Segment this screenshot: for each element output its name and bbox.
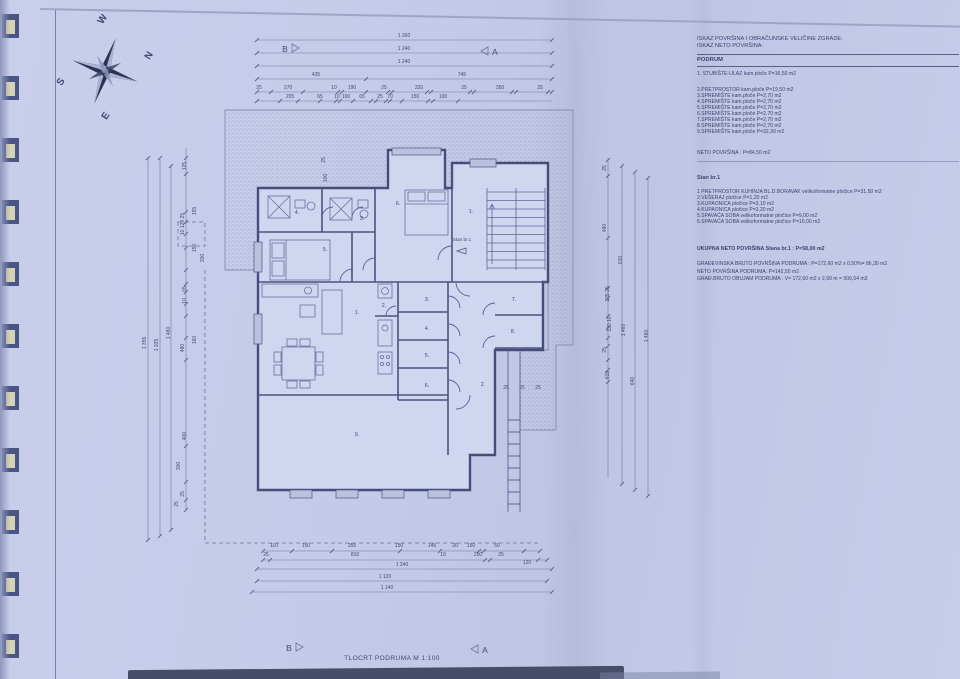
section-marker-b-bottom: B bbox=[286, 643, 292, 653]
svg-text:20: 20 bbox=[452, 543, 458, 549]
svg-text:300: 300 bbox=[176, 462, 182, 471]
svg-text:125: 125 bbox=[182, 162, 188, 171]
table-line: GRAĐ.BRUTO OBUJAM PODRUMA : V= 172,60 m2… bbox=[697, 277, 959, 283]
svg-text:255: 255 bbox=[348, 543, 357, 549]
svg-text:480: 480 bbox=[602, 224, 608, 233]
svg-text:1 480: 1 480 bbox=[166, 327, 172, 340]
svg-text:5.: 5. bbox=[425, 353, 430, 359]
section-marker-b-bottom-arrow bbox=[296, 643, 303, 651]
svg-text:25: 25 bbox=[503, 385, 509, 391]
svg-text:65: 65 bbox=[182, 286, 188, 292]
svg-text:25: 25 bbox=[321, 157, 327, 163]
svg-text:10 120 25: 10 120 25 bbox=[180, 213, 186, 235]
svg-text:150: 150 bbox=[411, 94, 420, 100]
svg-text:25: 25 bbox=[602, 347, 608, 353]
svg-text:1 240: 1 240 bbox=[398, 59, 411, 65]
svg-text:25: 25 bbox=[180, 491, 186, 497]
svg-text:615: 615 bbox=[605, 371, 611, 380]
svg-text:640: 640 bbox=[630, 377, 636, 386]
section-marker-a-top: A bbox=[492, 47, 498, 57]
table-line: GRAĐEVINSKA BRUTO POVRŠINA PODRUMA : P=1… bbox=[697, 262, 959, 268]
svg-text:150: 150 bbox=[395, 543, 404, 549]
svg-text:155: 155 bbox=[192, 207, 198, 216]
table-title-line-2: ISKAZ NETO POVRŠINA: bbox=[697, 43, 959, 50]
svg-text:160: 160 bbox=[192, 336, 198, 345]
svg-text:150: 150 bbox=[192, 244, 198, 253]
svg-text:6.: 6. bbox=[396, 201, 401, 207]
svg-text:1 335: 1 335 bbox=[154, 339, 160, 352]
svg-text:150: 150 bbox=[302, 543, 311, 549]
table-line: 9.SPREMIŠTE kam.ploče P=32,30 m2 bbox=[697, 130, 959, 136]
svg-text:2.: 2. bbox=[382, 303, 387, 309]
svg-text:1 240: 1 240 bbox=[398, 46, 411, 52]
photographed-blueprint-sheet: W N S E bbox=[0, 0, 960, 679]
stan-item-list: 1 PRETPROSTOR KUHINJA BL.D.BORAVAK velik… bbox=[697, 190, 959, 226]
stan-total: UKUPNA NETO POVRŠINA Stana br.1 : P=58,0… bbox=[697, 247, 959, 253]
svg-text:25: 25 bbox=[256, 85, 262, 91]
svg-text:25: 25 bbox=[377, 94, 383, 100]
svg-text:1 460: 1 460 bbox=[621, 324, 627, 337]
podrum-total: NETO POVRŠINA : P=84,50 m2 bbox=[697, 151, 959, 162]
svg-text:250: 250 bbox=[474, 552, 483, 558]
svg-text:10: 10 bbox=[440, 552, 446, 558]
podrum-item-list: 1. STUBIŠTE-ULAZ kam.ploče P=16,50 m22.P… bbox=[697, 72, 959, 135]
svg-text:25: 25 bbox=[498, 552, 504, 558]
svg-text:25: 25 bbox=[263, 552, 269, 558]
svg-text:6.: 6. bbox=[425, 383, 430, 389]
building-outline bbox=[258, 150, 548, 490]
svg-text:1 240: 1 240 bbox=[396, 562, 409, 568]
floor-plan-drawing: 1 2601 2401 2404357452527010190253202535… bbox=[140, 8, 700, 679]
svg-text:200: 200 bbox=[200, 254, 206, 263]
table-line: 6.SPAVAĆA SOBA velikoformatne pločice P=… bbox=[697, 220, 959, 226]
drawing-title: TLOCRT PODRUMA M 1:100 bbox=[344, 655, 440, 662]
exterior-stair-path bbox=[508, 350, 520, 512]
svg-text:25: 25 bbox=[461, 85, 467, 91]
svg-text:3.: 3. bbox=[360, 216, 365, 222]
svg-text:8.: 8. bbox=[511, 329, 516, 335]
svg-text:810: 810 bbox=[351, 552, 360, 558]
svg-text:4.: 4. bbox=[295, 210, 300, 216]
compass-star bbox=[62, 28, 148, 114]
table-line: 1. STUBIŠTE-ULAZ kam.ploče P=16,50 m2 bbox=[697, 72, 959, 78]
svg-text:1 355: 1 355 bbox=[142, 337, 148, 350]
compass-west-label: W bbox=[96, 14, 111, 26]
svg-text:1.: 1. bbox=[355, 310, 360, 316]
compass-south-label: S bbox=[55, 76, 68, 88]
svg-text:130 10: 130 10 bbox=[607, 316, 613, 332]
area-statement-table: ISKAZ POVRŠINA I OBRAČUNSKE VELIČINE ZGR… bbox=[697, 36, 959, 285]
svg-text:620: 620 bbox=[618, 256, 624, 265]
svg-text:400: 400 bbox=[182, 432, 188, 441]
svg-text:120: 120 bbox=[523, 560, 532, 566]
svg-text:70: 70 bbox=[387, 94, 393, 100]
svg-text:320: 320 bbox=[415, 85, 424, 91]
svg-text:1 140: 1 140 bbox=[381, 585, 394, 591]
podrum-header: PODRUM bbox=[697, 54, 959, 67]
section-marker-a-top-arrow bbox=[481, 47, 488, 55]
svg-text:190: 190 bbox=[348, 85, 357, 91]
stan-annotation: Stan br.1 bbox=[453, 237, 472, 242]
section-marker-a-bottom-arrow bbox=[471, 645, 478, 653]
svg-text:5.: 5. bbox=[323, 247, 328, 253]
svg-text:270: 270 bbox=[284, 85, 293, 91]
svg-text:100: 100 bbox=[439, 94, 448, 100]
svg-text:3.: 3. bbox=[425, 297, 430, 303]
svg-text:9.: 9. bbox=[355, 432, 360, 438]
svg-text:1 480: 1 480 bbox=[644, 330, 650, 343]
svg-text:25: 25 bbox=[519, 385, 525, 391]
svg-text:65: 65 bbox=[317, 94, 323, 100]
svg-text:480: 480 bbox=[180, 344, 186, 353]
svg-text:25: 25 bbox=[537, 85, 543, 91]
table-line: NETO POVRŠINA PODRUMA: P=142,50 m2 bbox=[697, 270, 959, 276]
svg-text:60: 60 bbox=[494, 543, 500, 549]
table-title-line-1: ISKAZ POVRŠINA I OBRAČUNSKE VELIČINE ZGR… bbox=[697, 36, 959, 43]
svg-text:25: 25 bbox=[381, 85, 387, 91]
svg-text:4.: 4. bbox=[425, 326, 430, 332]
svg-text:100: 100 bbox=[323, 174, 329, 183]
svg-text:10: 10 bbox=[182, 298, 188, 304]
svg-text:10: 10 bbox=[334, 94, 340, 100]
svg-text:2.: 2. bbox=[481, 382, 486, 388]
svg-text:435: 435 bbox=[312, 72, 321, 78]
summary-lines: GRAĐEVINSKA BRUTO POVRŠINA PODRUMA : P=1… bbox=[697, 262, 959, 283]
svg-text:25: 25 bbox=[535, 385, 541, 391]
svg-text:1 120: 1 120 bbox=[379, 574, 392, 580]
svg-text:110: 110 bbox=[270, 543, 278, 549]
svg-text:1 260: 1 260 bbox=[398, 33, 411, 39]
section-marker-b-top: B bbox=[282, 44, 288, 54]
compass-east-label: E bbox=[100, 110, 113, 122]
paper-left-edge-shadow bbox=[0, 0, 10, 679]
svg-text:1.: 1. bbox=[469, 209, 474, 215]
svg-text:350: 350 bbox=[496, 85, 505, 91]
svg-text:125 25: 125 25 bbox=[605, 286, 611, 302]
svg-text:205: 205 bbox=[286, 94, 295, 100]
svg-text:65: 65 bbox=[359, 94, 365, 100]
stan-header: Stan br.1 bbox=[697, 176, 959, 182]
svg-text:25: 25 bbox=[174, 501, 180, 507]
svg-text:7.: 7. bbox=[512, 297, 517, 303]
svg-text:145: 145 bbox=[428, 543, 437, 549]
svg-text:150: 150 bbox=[467, 543, 476, 549]
svg-text:745: 745 bbox=[458, 72, 467, 78]
svg-text:25: 25 bbox=[602, 165, 608, 171]
svg-text:100: 100 bbox=[342, 94, 351, 100]
section-marker-a-bottom: A bbox=[482, 645, 488, 655]
svg-text:10: 10 bbox=[331, 85, 337, 91]
section-marker-b-top-arrow bbox=[292, 44, 299, 52]
